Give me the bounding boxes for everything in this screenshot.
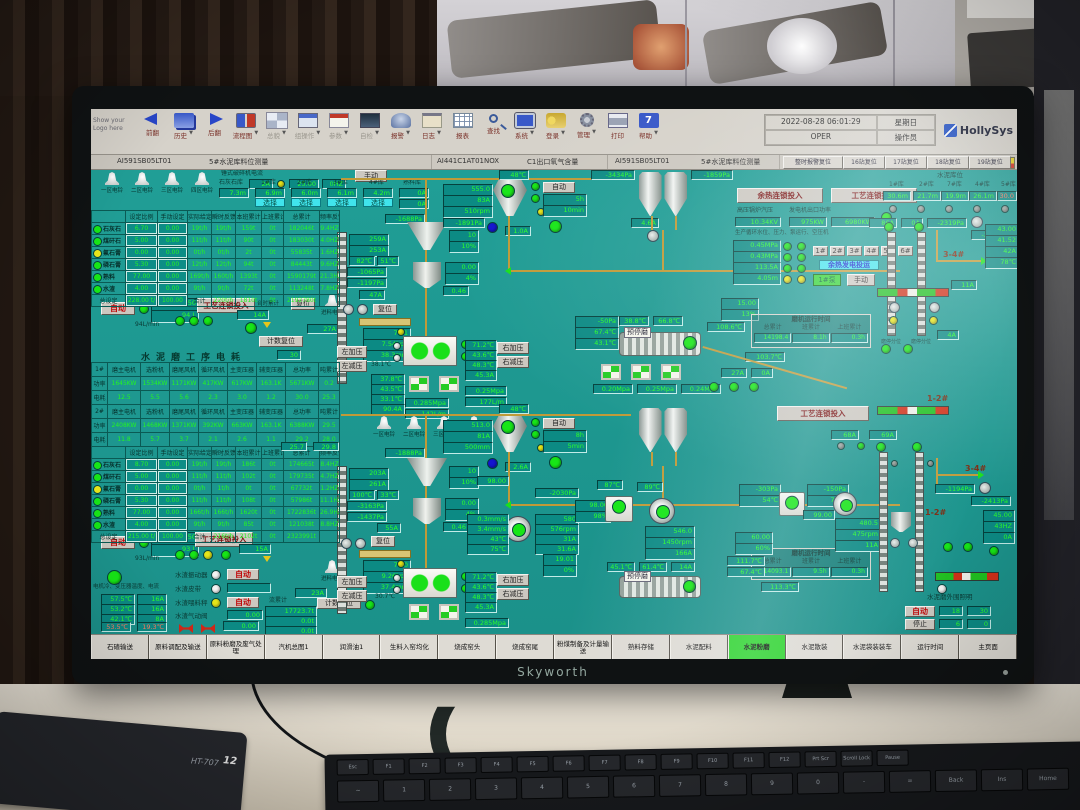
select-button[interactable]: 选择 [291,198,321,207]
value-box: -1065Pa [347,267,387,277]
key-F12[interactable]: F12 [768,751,800,768]
button[interactable]: 自动 [543,418,575,429]
dropdown-caret-icon[interactable]: ▼ [189,130,193,136]
key-~[interactable]: ~ [337,780,379,803]
cell-value: 0.2 [319,377,340,391]
cell-value: 12t/h [212,259,236,271]
cell-value: 功率 [92,377,108,391]
button[interactable]: 计数复位 [259,336,303,347]
cell-value[interactable]: 0.00 [126,247,158,259]
indicator-lamp [837,442,845,450]
pump-icon [343,304,354,315]
label: 锤式破碎机电流 [221,171,263,178]
cell-value: 11t/h [212,495,236,507]
toolbar-button-clipboard[interactable]: 日志 ▼ [416,109,447,140]
hollysys-logo-icon [944,124,957,137]
value-box: -2030Pa [535,488,579,498]
total-value: 合计 [188,531,212,543]
material-name: 水渣 [92,519,126,531]
station-reset-button[interactable]: 16站复位 [843,156,885,169]
runtime-header: 上班累计 [831,324,868,332]
value-box: 30.0 [997,191,1017,201]
indicator-lamp [891,460,898,467]
cell-value[interactable]: 5.00 [126,235,158,247]
dropdown-caret-icon[interactable]: ▼ [344,130,348,136]
cell-value: 21.3HZ [320,271,340,283]
toolbar-button-key[interactable]: 登录 ▼ [540,109,571,140]
key-F2[interactable]: F2 [409,758,441,775]
cell-value[interactable]: 77.00 [126,271,158,283]
runtime-value: 14198.4 [754,333,791,343]
cell-value: 1393t [236,271,262,283]
total-value: 216t/h [212,531,236,543]
select-button[interactable]: 选择 [255,198,285,207]
pump-icon [357,304,368,315]
station-reset-button[interactable]: 19站复位 [969,156,1011,169]
toolbar-button-gear[interactable]: 管理 ▼ [571,109,602,140]
tab-水泥粉磨[interactable]: 水泥粉磨 [728,635,786,659]
alarm-status-bar: AI591SB05LT015#水泥库料位测量AI441C1AT01NOXC1出口… [91,155,1017,170]
key-F9[interactable]: F9 [661,753,693,770]
table-row: 水渣4.000.009t/h9t/h85t0t121038t8.8HZ [92,519,340,531]
indicator-lamp [203,550,213,560]
key-F4[interactable]: F4 [481,756,513,773]
label: 磨停分位 [911,340,931,346]
bell-icon [377,416,392,430]
camera-view-divider [685,0,687,96]
material-name: 磷石膏 [92,259,126,271]
process-diagram: 水泥磨工序电耗 一区电铃二区电铃三区电铃四区电铃锤式破碎机电流2A25.000H… [91,170,1017,634]
cell-value: 108t [236,495,262,507]
tab-生料入窑均化[interactable]: 生料入窑均化 [380,635,438,659]
indicator-lamp [211,598,221,608]
cell-value[interactable]: 5.30 [126,259,158,271]
column-header: 手动设定 [158,447,188,459]
scada-screen: Show your Logo here 前翻历史 ▼后翻流程图 ▼总貌 ▼组操作… [91,109,1017,659]
select-button[interactable]: 余热发电投运 [819,260,879,270]
button[interactable]: 3# [847,246,862,256]
tab-烧成窑尾[interactable]: 烧成窑尾 [496,635,554,659]
pump-icon [908,538,918,548]
key-F1[interactable]: F1 [373,758,405,775]
cell-value: 11t/h [188,235,212,247]
damper-indicator [409,376,429,392]
bell-icon [407,416,422,430]
pump-icon [890,538,900,548]
value-box: 0.00 [223,621,259,631]
button[interactable]: 左减压 [337,360,367,372]
cell-value[interactable]: 6.70 [126,223,158,235]
table-row: 磷石膏5.300.0012t/h12t/h94t0t84443t9.6HZ [92,259,340,271]
cell-value: 选粉机 [141,363,170,377]
cell-value[interactable]: 0.00 [158,483,188,495]
dropdown-caret-icon[interactable]: ▼ [254,130,258,136]
separator-lamp [785,495,799,509]
key-0[interactable]: 0 [797,772,839,795]
hollysys-logo-text: HollySys [960,124,1013,137]
key-1[interactable]: 1 [383,779,425,802]
cell-value: 0t/h [212,247,236,259]
value-box: -1891Pa [443,218,485,228]
tab-烧成窑头[interactable]: 烧成窑头 [438,635,496,659]
cell-value[interactable]: 4.00 [126,519,158,531]
tab-原料调配及输送[interactable]: 原料调配及输送 [149,635,207,659]
tab-运行时间[interactable]: 运行时间 [901,635,959,659]
dropdown-caret-icon[interactable]: ▼ [561,130,565,136]
value-box: 67.4℃ [727,567,765,577]
pump-button[interactable]: 1#泵 [813,274,841,286]
tab-水泥配料[interactable]: 水泥配料 [670,635,728,659]
key-F8[interactable]: F8 [625,754,657,771]
dropdown-caret-icon[interactable]: ▼ [316,130,320,136]
value-box: 113.3℃ [761,582,799,592]
button[interactable]: 停止 [905,619,935,630]
bucket-elevator-icon [917,232,926,336]
key-3[interactable]: 3 [475,777,517,800]
cell-value: 循环风机 [199,405,228,419]
cell-value: 19t/h [212,223,236,235]
cell-value: 174665t [284,459,320,471]
table-row: 磷石膏5.300.0011t/h11t/h108t0t57986t11.1HZ [92,495,340,507]
cell-value: 吨累计 [319,363,340,377]
dropdown-caret-icon[interactable]: ▼ [592,129,596,135]
toolbar-button-window[interactable]: 组操作 ▼ [292,109,323,140]
cell-value: 0t [236,483,262,495]
pipe [651,452,653,466]
button[interactable]: 复位 [373,304,397,315]
table-row: 水渣4.000.009t/h9t/h72t0t113248t7.8HZ [92,283,340,295]
button[interactable]: 工艺连锁投入 [777,406,869,421]
indicator-lamp [397,328,405,336]
key-Scroll Lock[interactable]: Scroll Lock [840,750,872,767]
dropdown-caret-icon[interactable]: ▼ [530,130,534,136]
toolbar-button-table[interactable]: 报表 [447,109,478,140]
cell-value: 84443t [284,259,320,271]
wood-wall [0,0,437,96]
key-7[interactable]: 7 [659,774,701,797]
indicator-lamp [973,205,981,213]
key-F5[interactable]: F5 [517,756,549,773]
cell-value: 617KW [228,377,257,391]
button[interactable]: 左加压 [337,576,367,588]
cell-value: 功率 [92,419,108,433]
button[interactable]: 6# [898,246,913,256]
datetime: 2022-08-28 06:01:29 [765,115,877,130]
cell-value[interactable]: 0.00 [158,459,188,471]
value-box: 68A [831,430,859,440]
key-F3[interactable]: F3 [445,757,477,774]
indicator-lamp [914,222,924,232]
tab-主页面[interactable]: 主页面 [959,635,1017,659]
value-box: 30 [967,606,991,616]
tab-石碴输送[interactable]: 石碴输送 [91,635,149,659]
station-reset-button[interactable]: 17站复位 [885,156,927,169]
button[interactable]: 4# [864,246,879,256]
cell-value: 1.2 [257,391,286,405]
cell-value: 166t/h [188,507,212,519]
tab-润滑油1[interactable]: 润滑油1 [323,635,381,659]
flow-arrow [263,556,271,566]
value-box: -1888Pa [385,448,425,458]
key-F10[interactable]: F10 [696,753,728,770]
value-box: 55A [377,523,401,533]
key-Prt Scr[interactable]: Prt Scr [804,751,836,768]
cell-value[interactable]: 0.00 [158,283,188,295]
flow-arrow [501,501,511,509]
toolbar-button-arrow-left[interactable]: 前翻 [137,109,168,140]
button[interactable]: 自动 [543,182,575,193]
cell-value[interactable]: 0.00 [158,271,188,283]
key-2[interactable]: 2 [429,778,471,801]
tab-熟料存储[interactable]: 熟料存储 [612,635,670,659]
device-number: 12 [223,755,238,767]
key-Ins[interactable]: Ins [981,769,1023,792]
button[interactable]: 手动 [847,274,875,286]
key--[interactable]: - [843,771,885,794]
silo-icon [639,408,662,452]
tab-原料粉磨及废气处理[interactable]: 原料粉磨及废气处理 [207,635,265,659]
label: 1-2# [927,394,948,403]
dropdown-caret-icon[interactable]: ▼ [406,130,410,136]
value-box: 10.34KV [735,217,781,227]
cell-value[interactable]: 0.00 [158,471,188,483]
button[interactable]: 2# [830,246,845,256]
toolbar-button-screen[interactable]: 自检 ▼ [354,109,385,140]
cell-value: 0t [262,495,284,507]
dropdown-caret-icon[interactable]: ▼ [282,130,286,136]
flow-arrow [501,267,511,275]
button[interactable]: 左加压 [337,346,367,358]
cell-value: 5671KW [286,377,319,391]
key-9[interactable]: 9 [751,773,793,796]
cell-value[interactable]: 0.00 [158,247,188,259]
station-reset-button[interactable]: 整时报警复位 [783,156,843,169]
cell-value[interactable]: 0.00 [158,507,188,519]
total-value: 100.00 [158,295,188,307]
column-header: 实际给定 [188,447,212,459]
dropdown-caret-icon[interactable]: ▼ [437,130,441,136]
toolbar-button-label: 历史 ▼ [168,130,199,140]
cell-value: 5.7 [141,433,170,447]
indicator-lamp [881,344,891,354]
material-lamp [93,461,102,470]
cell-value: 9t/h [212,283,236,295]
value-box: -1197Pa [347,278,387,288]
cell-value[interactable]: 5.30 [126,495,158,507]
toolbar-button-help[interactable]: 7帮助 ▼ [633,109,664,140]
toolbar-button-printer[interactable]: 打印 [602,109,633,140]
cell-value: 9.6HZ [320,259,340,271]
help-icon: 7 [639,113,659,128]
key-5[interactable]: 5 [567,776,609,799]
cell-value[interactable]: 0.00 [158,259,188,271]
button[interactable]: 自动 [227,569,259,580]
key-4[interactable]: 4 [521,777,563,800]
material-lamp [93,273,102,282]
button[interactable]: 自动 [227,597,259,608]
wood-wall [0,96,74,690]
key-Esc[interactable]: Esc [337,759,369,776]
column-header: 上班累计 [262,211,284,223]
fan-icon [833,492,857,516]
cell-value: 9t/h [188,283,212,295]
pipe [938,474,978,476]
table-row: 功率2408KW1468KW1371KW392KW663KW163.1K6388… [92,419,340,433]
indicator-lamp [175,316,185,326]
cell-value: 4.7HZ [320,471,340,483]
label: 流累计 [269,598,287,605]
indicator-lamp [709,382,719,392]
button[interactable]: 右加压 [497,342,529,354]
cell-value: 183030t [284,235,320,247]
cell-value: 9t/h [212,519,236,531]
toolbar-button-label: 帮助 ▼ [633,130,664,140]
tab-水泥袋装装车[interactable]: 水泥袋装装车 [843,635,901,659]
total-value: 2102t [236,531,262,543]
total-value: 总设定 [92,295,126,307]
cell-value: 1722836t [284,507,320,519]
column-header: 频率反馈 [320,211,340,223]
value-box: 111.7℃ [727,556,765,566]
value-box: 45.3A [465,602,497,613]
runtime-header: 上班累计 [831,558,868,566]
total-value: 2192780t [284,295,320,307]
select-button[interactable]: 选择 [363,198,393,207]
runtime-value: 0.3h [831,333,868,343]
cell-value: 11t/h [188,495,212,507]
select-button[interactable]: 选择 [327,198,357,207]
cell-value: 663KW [228,419,257,433]
cell-value: 4.0HZ [320,235,340,247]
cell-value[interactable]: 0.00 [158,519,188,531]
label: 3-4# [943,250,964,259]
indicator-lamp [783,275,792,284]
cell-value[interactable]: 0.00 [158,495,188,507]
indicator-lamp [945,205,953,213]
history-icon [174,113,194,128]
cell-value: 辅变压器 [257,405,286,419]
key-F11[interactable]: F11 [732,752,764,769]
tab-粉煤制备及计量输送[interactable]: 粉煤制备及计量输送 [554,635,612,659]
toolbar-button-history[interactable]: 历史 ▼ [168,109,199,140]
cell-value: 159t [236,223,262,235]
separator-icon [779,492,805,516]
indicator-lamp [221,550,231,560]
toolbar-button-calendar[interactable]: 参数 ▼ [323,109,354,140]
cell-value[interactable]: 0.00 [158,223,188,235]
button[interactable]: 右减压 [497,356,529,368]
key-F7[interactable]: F7 [589,755,621,772]
indicator-lamp [876,442,886,452]
cell-value[interactable]: 5.00 [126,471,158,483]
cell-value: 166t/h [212,507,236,519]
cell-value[interactable]: 0.00 [126,483,158,495]
cell-value[interactable]: 77.00 [126,507,158,519]
pipe [510,270,900,272]
indicator-lamp [683,580,696,593]
pipe [936,458,938,484]
cell-value[interactable]: 8.70 [126,459,158,471]
cell-value: 163.1K [257,377,286,391]
toolbar-button-arrow-right[interactable]: 后翻 [199,109,230,140]
button[interactable]: 左减压 [337,590,367,602]
damper-indicator [631,364,651,380]
pump-icon [929,302,940,313]
indicator-lamp [683,336,697,350]
toolbar-button-magnifier[interactable]: 查找 [478,109,509,140]
button[interactable]: 复位 [371,536,395,547]
key-=[interactable]: = [889,770,931,793]
cell-value: 163.1K [257,419,286,433]
value-box: -3163Pa [347,501,387,511]
cell-value: 辅变压器 [257,363,286,377]
dropdown-caret-icon[interactable]: ▼ [654,130,658,136]
value-box: 6 [939,619,963,629]
runtime-header: 总累计 [754,324,791,332]
power-footer-value: 29.8 [313,442,339,451]
button[interactable]: 自动 [905,606,935,617]
button[interactable]: 1# [813,246,828,256]
column-header: 总累计 [284,211,320,223]
pipe [508,216,510,270]
table-row: 煤矸石5.000.0011t/h11t/h102t0t179735t4.7HZ [92,471,340,483]
datetime-panel: 2022-08-28 06:01:29 星期日 OPER 操作员 [764,114,936,146]
indicator-lamp [943,542,953,552]
indicator-lamp [531,182,540,191]
toolbar-button-label: 参数 ▼ [323,130,354,140]
key-Pause[interactable]: Pause [876,750,908,767]
cell-value[interactable]: 4.00 [126,283,158,295]
button[interactable]: 右减压 [497,588,529,600]
toolbar-button-monitor[interactable]: 系统 ▼ [509,109,540,140]
cell-value: 25.3 [319,391,340,405]
toolbar-button-grid[interactable]: 总貌 ▼ [261,109,292,140]
key-8[interactable]: 8 [705,773,747,796]
value-box: 14A [237,310,269,320]
value-box: 500mm [443,442,493,454]
label: 1-2# [925,508,946,517]
tab-水泥散装[interactable]: 水泥散装 [786,635,844,659]
toolbar-button-lamp[interactable]: 报警 ▼ [385,109,416,140]
key-6[interactable]: 6 [613,775,655,798]
indicator-lamp [927,460,934,467]
value-box: 78℃ [985,257,1017,269]
cell-value[interactable]: 0.00 [158,235,188,247]
dropdown-caret-icon[interactable]: ▼ [375,130,379,136]
key-F6[interactable]: F6 [553,755,585,772]
button[interactable]: 余热连锁投入 [737,188,823,203]
value-box: 43.1℃ [575,338,619,350]
station-reset-button[interactable]: 18站复位 [927,156,969,169]
value-box: 75℃ [467,544,509,555]
button[interactable]: 右加压 [497,574,529,586]
label: 38.1℃ [371,362,391,369]
toolbar-button-label: 组操作 ▼ [292,130,323,140]
hopper-icon [407,458,447,486]
total-value: 0t [262,531,284,543]
tab-汽机总图1[interactable]: 汽机总图1 [265,635,323,659]
value-box: 6.1m [327,188,357,198]
cell-value: 循环风机 [199,363,228,377]
value-box: 19.3℃ [137,622,167,632]
bucket-elevator-icon [915,452,924,592]
cctv-wall-screen [437,0,955,96]
key-Back[interactable]: Back [935,769,977,792]
key-Home[interactable]: Home [1027,768,1069,791]
material-lamp [93,225,102,234]
bin-icon [413,498,441,524]
toolbar-button-flowchart[interactable]: 流程图 ▼ [230,109,261,140]
